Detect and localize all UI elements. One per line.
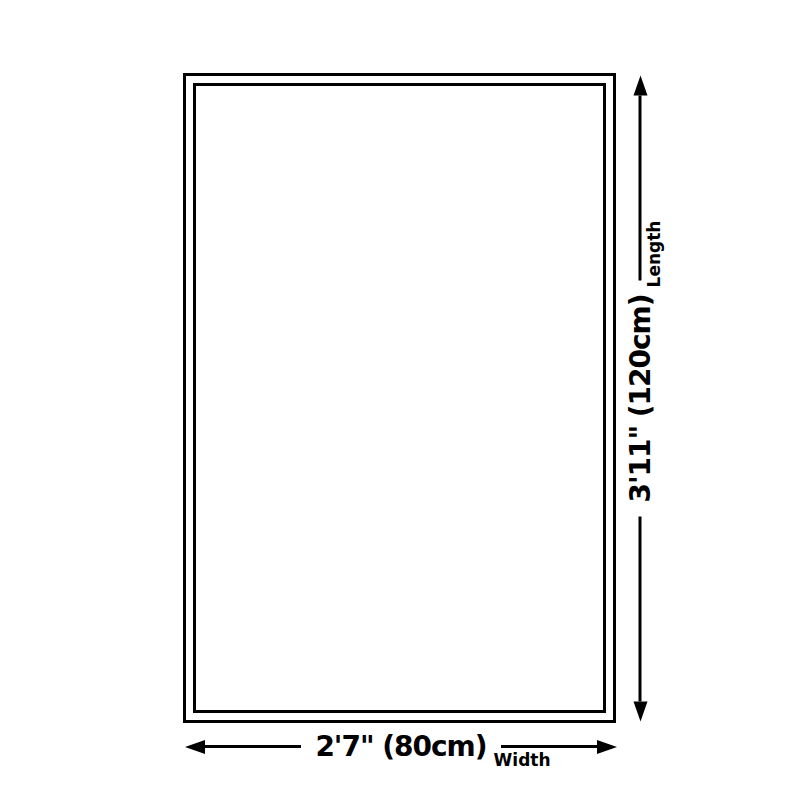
size-diagram-canvas: 3'11" (120cm) Length 2'7" (80cm) Width [0,0,800,800]
length-label: Length [645,221,662,288]
width-value: 2'7" (80cm) [315,733,486,761]
arrow-right-icon [597,740,617,754]
length-value: 3'11" (120cm) [626,294,654,502]
length-dimension: 3'11" (120cm) Length [626,76,655,722]
length-dimension-line-lower [639,517,642,702]
width-dimension-line-right [501,745,597,748]
rug-inner-border [193,83,606,713]
width-dimension-text: 2'7" (80cm) Width [315,733,486,761]
rug-outer-border [183,73,616,723]
width-dimension: 2'7" (80cm) Width [185,732,617,761]
length-dimension-text: 3'11" (120cm) Length [626,294,654,502]
arrow-up-icon [633,75,647,95]
arrow-left-icon [185,740,205,754]
width-dimension-line-left [205,745,301,748]
arrow-down-icon [633,702,647,722]
length-dimension-line-upper [639,95,642,280]
width-label: Width [494,752,551,769]
